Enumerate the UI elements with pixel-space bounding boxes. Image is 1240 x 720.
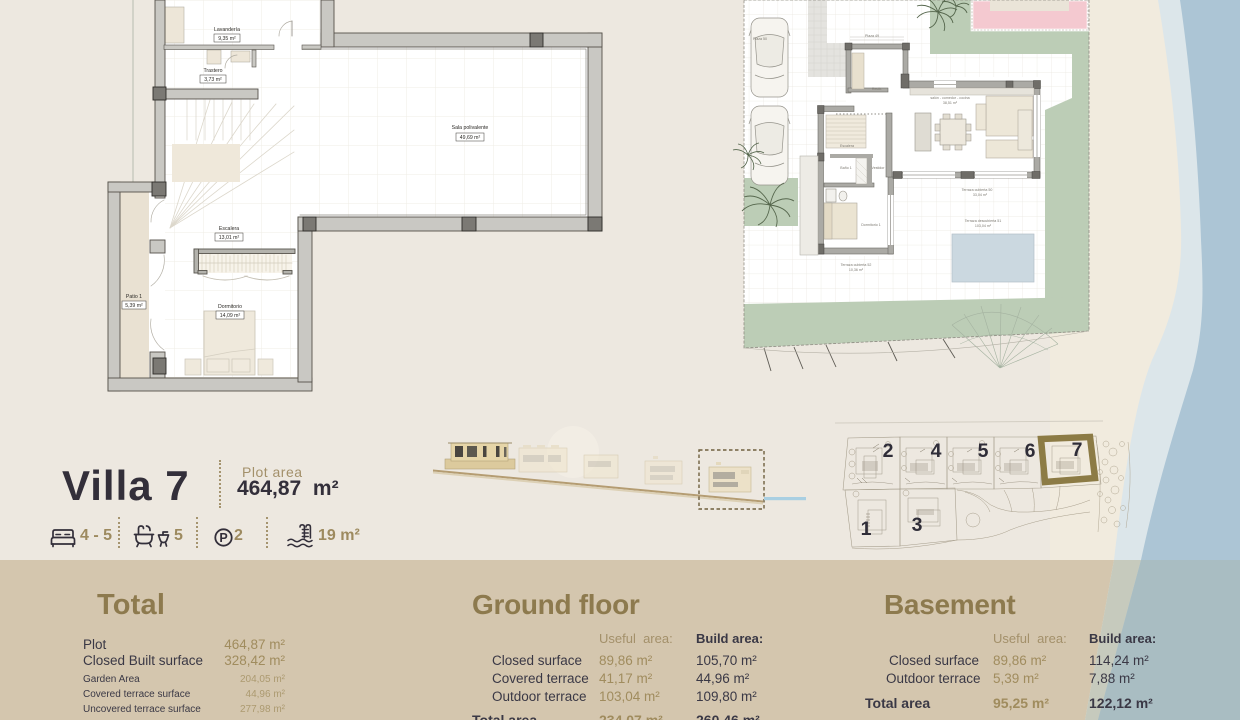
svg-text:103,04 m²: 103,04 m² (975, 224, 992, 228)
svg-text:Escalera: Escalera (840, 144, 854, 148)
svg-text:Trastero: Trastero (203, 68, 222, 74)
svg-text:2: 2 (883, 440, 894, 462)
svg-text:Plaza 50: Plaza 50 (753, 37, 767, 41)
svg-text:Escalera: Escalera (219, 226, 239, 232)
svg-text:7: 7 (1072, 439, 1083, 461)
svg-text:Patio 1: Patio 1 (126, 294, 142, 300)
svg-text:Vestidor: Vestidor (872, 166, 886, 170)
svg-text:13,01 m²: 13,01 m² (219, 235, 240, 241)
svg-text:Dormitorio: Dormitorio (218, 304, 242, 310)
svg-text:10,36 m²: 10,36 m² (849, 268, 864, 272)
svg-text:Recib.: Recib. (872, 87, 882, 91)
svg-text:Lavandería: Lavandería (214, 27, 240, 33)
svg-text:P: P (219, 531, 227, 545)
svg-text:6: 6 (1025, 440, 1036, 462)
svg-text:Terraza cubierta 50: Terraza cubierta 50 (962, 188, 993, 192)
svg-text:Baño 1: Baño 1 (840, 166, 851, 170)
svg-text:Dormitorio 1: Dormitorio 1 (861, 223, 881, 227)
svg-text:Terraza cubierta 52: Terraza cubierta 52 (841, 263, 872, 267)
svg-text:salón - comedor - cocina: salón - comedor - cocina (930, 96, 969, 100)
svg-text:14,09 m²: 14,09 m² (220, 313, 241, 319)
svg-text:38,51 m²: 38,51 m² (943, 101, 958, 105)
svg-text:Terraza descubierta 51: Terraza descubierta 51 (965, 219, 1002, 223)
svg-text:1: 1 (861, 518, 872, 540)
svg-text:3,73 m²: 3,73 m² (204, 77, 222, 83)
svg-text:Sala polivalente: Sala polivalente (452, 125, 489, 131)
svg-text:33,04 m²: 33,04 m² (973, 193, 988, 197)
svg-text:5: 5 (978, 440, 989, 462)
svg-text:4: 4 (931, 440, 942, 462)
svg-text:Plaza 49: Plaza 49 (865, 34, 879, 38)
svg-text:3: 3 (912, 514, 923, 536)
svg-text:9,35 m²: 9,35 m² (218, 36, 236, 42)
svg-text:5,39 m²: 5,39 m² (125, 303, 143, 309)
svg-text:49,69 m²: 49,69 m² (460, 135, 481, 141)
